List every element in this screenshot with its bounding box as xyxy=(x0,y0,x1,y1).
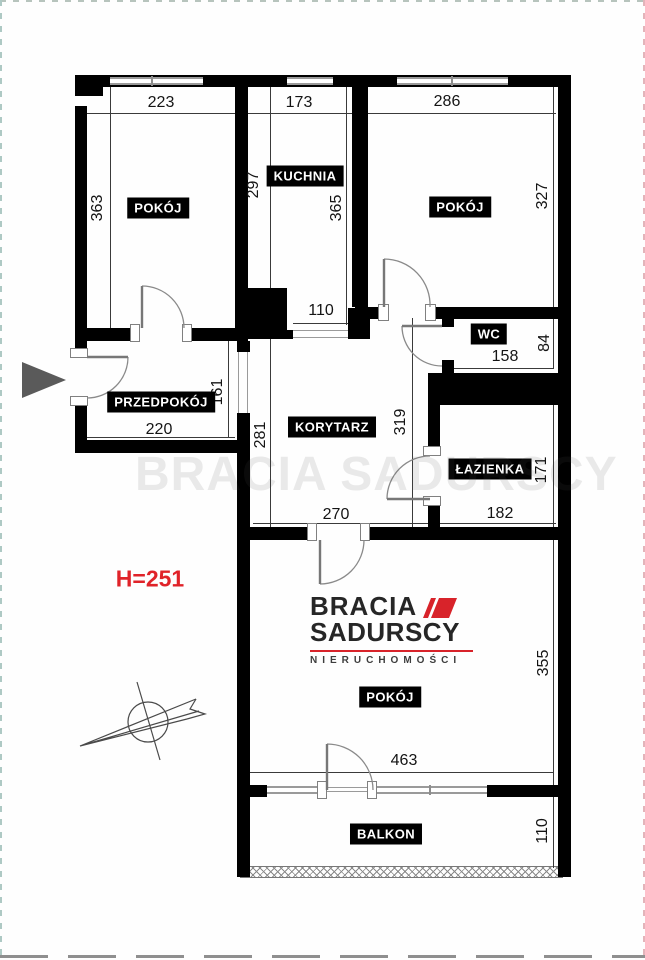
entrance-arrow-icon xyxy=(22,362,66,398)
room-label-korytarz: KORYTARZ xyxy=(288,417,376,438)
door-leaves xyxy=(87,259,442,790)
logo-line2: SADURSCY xyxy=(310,619,473,646)
ceiling-height-note: H=251 xyxy=(116,566,184,593)
page-edge-left xyxy=(0,0,2,960)
dim-lazienka-width: 182 xyxy=(487,505,514,523)
room-label-przedpokoj: PRZEDPOKÓJ xyxy=(107,392,215,413)
north-arrow-shaft xyxy=(80,699,199,746)
dim-korytarz-depth-left: 281 xyxy=(252,422,270,449)
logo-flag-icon xyxy=(421,596,459,619)
room-label-pokoj-top-right: POKÓJ xyxy=(429,197,491,218)
dim-pokoj-tl-width: 223 xyxy=(148,94,175,112)
dim-kuchnia-width: 173 xyxy=(286,94,313,112)
dim-przedpokoj-width: 220 xyxy=(146,421,173,439)
logo-tagline: NIERUCHOMOŚCI xyxy=(310,655,473,666)
door-arc xyxy=(320,540,364,584)
room-label-pokoj-bottom: POKÓJ xyxy=(359,687,421,708)
dim-pokoj-b-width: 463 xyxy=(391,752,418,770)
page-edge-top xyxy=(0,0,645,2)
logo-rule xyxy=(310,650,473,652)
dim-balkon-height: 110 xyxy=(534,818,552,844)
room-label-balkon: BALKON xyxy=(350,824,422,845)
dim-korytarz-depth-right: 319 xyxy=(392,409,410,436)
logo-line1: BRACIA xyxy=(310,593,417,619)
dim-wc-height: 84 xyxy=(536,334,554,352)
dim-pokoj-tr-width: 286 xyxy=(434,93,461,111)
dim-kuchnia-depth-left: 297 xyxy=(245,172,263,199)
door-arcs xyxy=(87,259,442,790)
dim-pokoj-b-height: 355 xyxy=(535,650,553,677)
dim-kuchnia-depth-right: 365 xyxy=(328,195,346,222)
room-label-wc: WC xyxy=(471,324,507,345)
dim-kuchnia-doorway: 110 xyxy=(308,302,334,320)
floorplan-canvas: POKÓJ KUCHNIA POKÓJ PRZEDPOKÓJ KORYTARZ … xyxy=(0,0,645,960)
dim-korytarz-width: 270 xyxy=(323,506,350,524)
page-edge-bottom xyxy=(0,955,645,958)
dim-wc-width: 158 xyxy=(492,348,519,366)
door-arc xyxy=(384,259,430,307)
room-label-pokoj-top-left: POKÓJ xyxy=(127,198,189,219)
door-arc xyxy=(142,286,184,328)
dim-pokoj-tr-height: 327 xyxy=(534,183,552,210)
north-arrow xyxy=(80,682,205,760)
brand-watermark: BRACIA SADURSCY xyxy=(135,447,618,502)
room-label-kuchnia: KUCHNIA xyxy=(267,166,344,187)
door-arc xyxy=(327,744,373,790)
door-arc xyxy=(402,326,442,366)
dim-pokoj-tl-height: 363 xyxy=(89,195,107,222)
agency-logo: BRACIA SADURSCY NIERUCHOMOŚCI xyxy=(310,593,473,666)
